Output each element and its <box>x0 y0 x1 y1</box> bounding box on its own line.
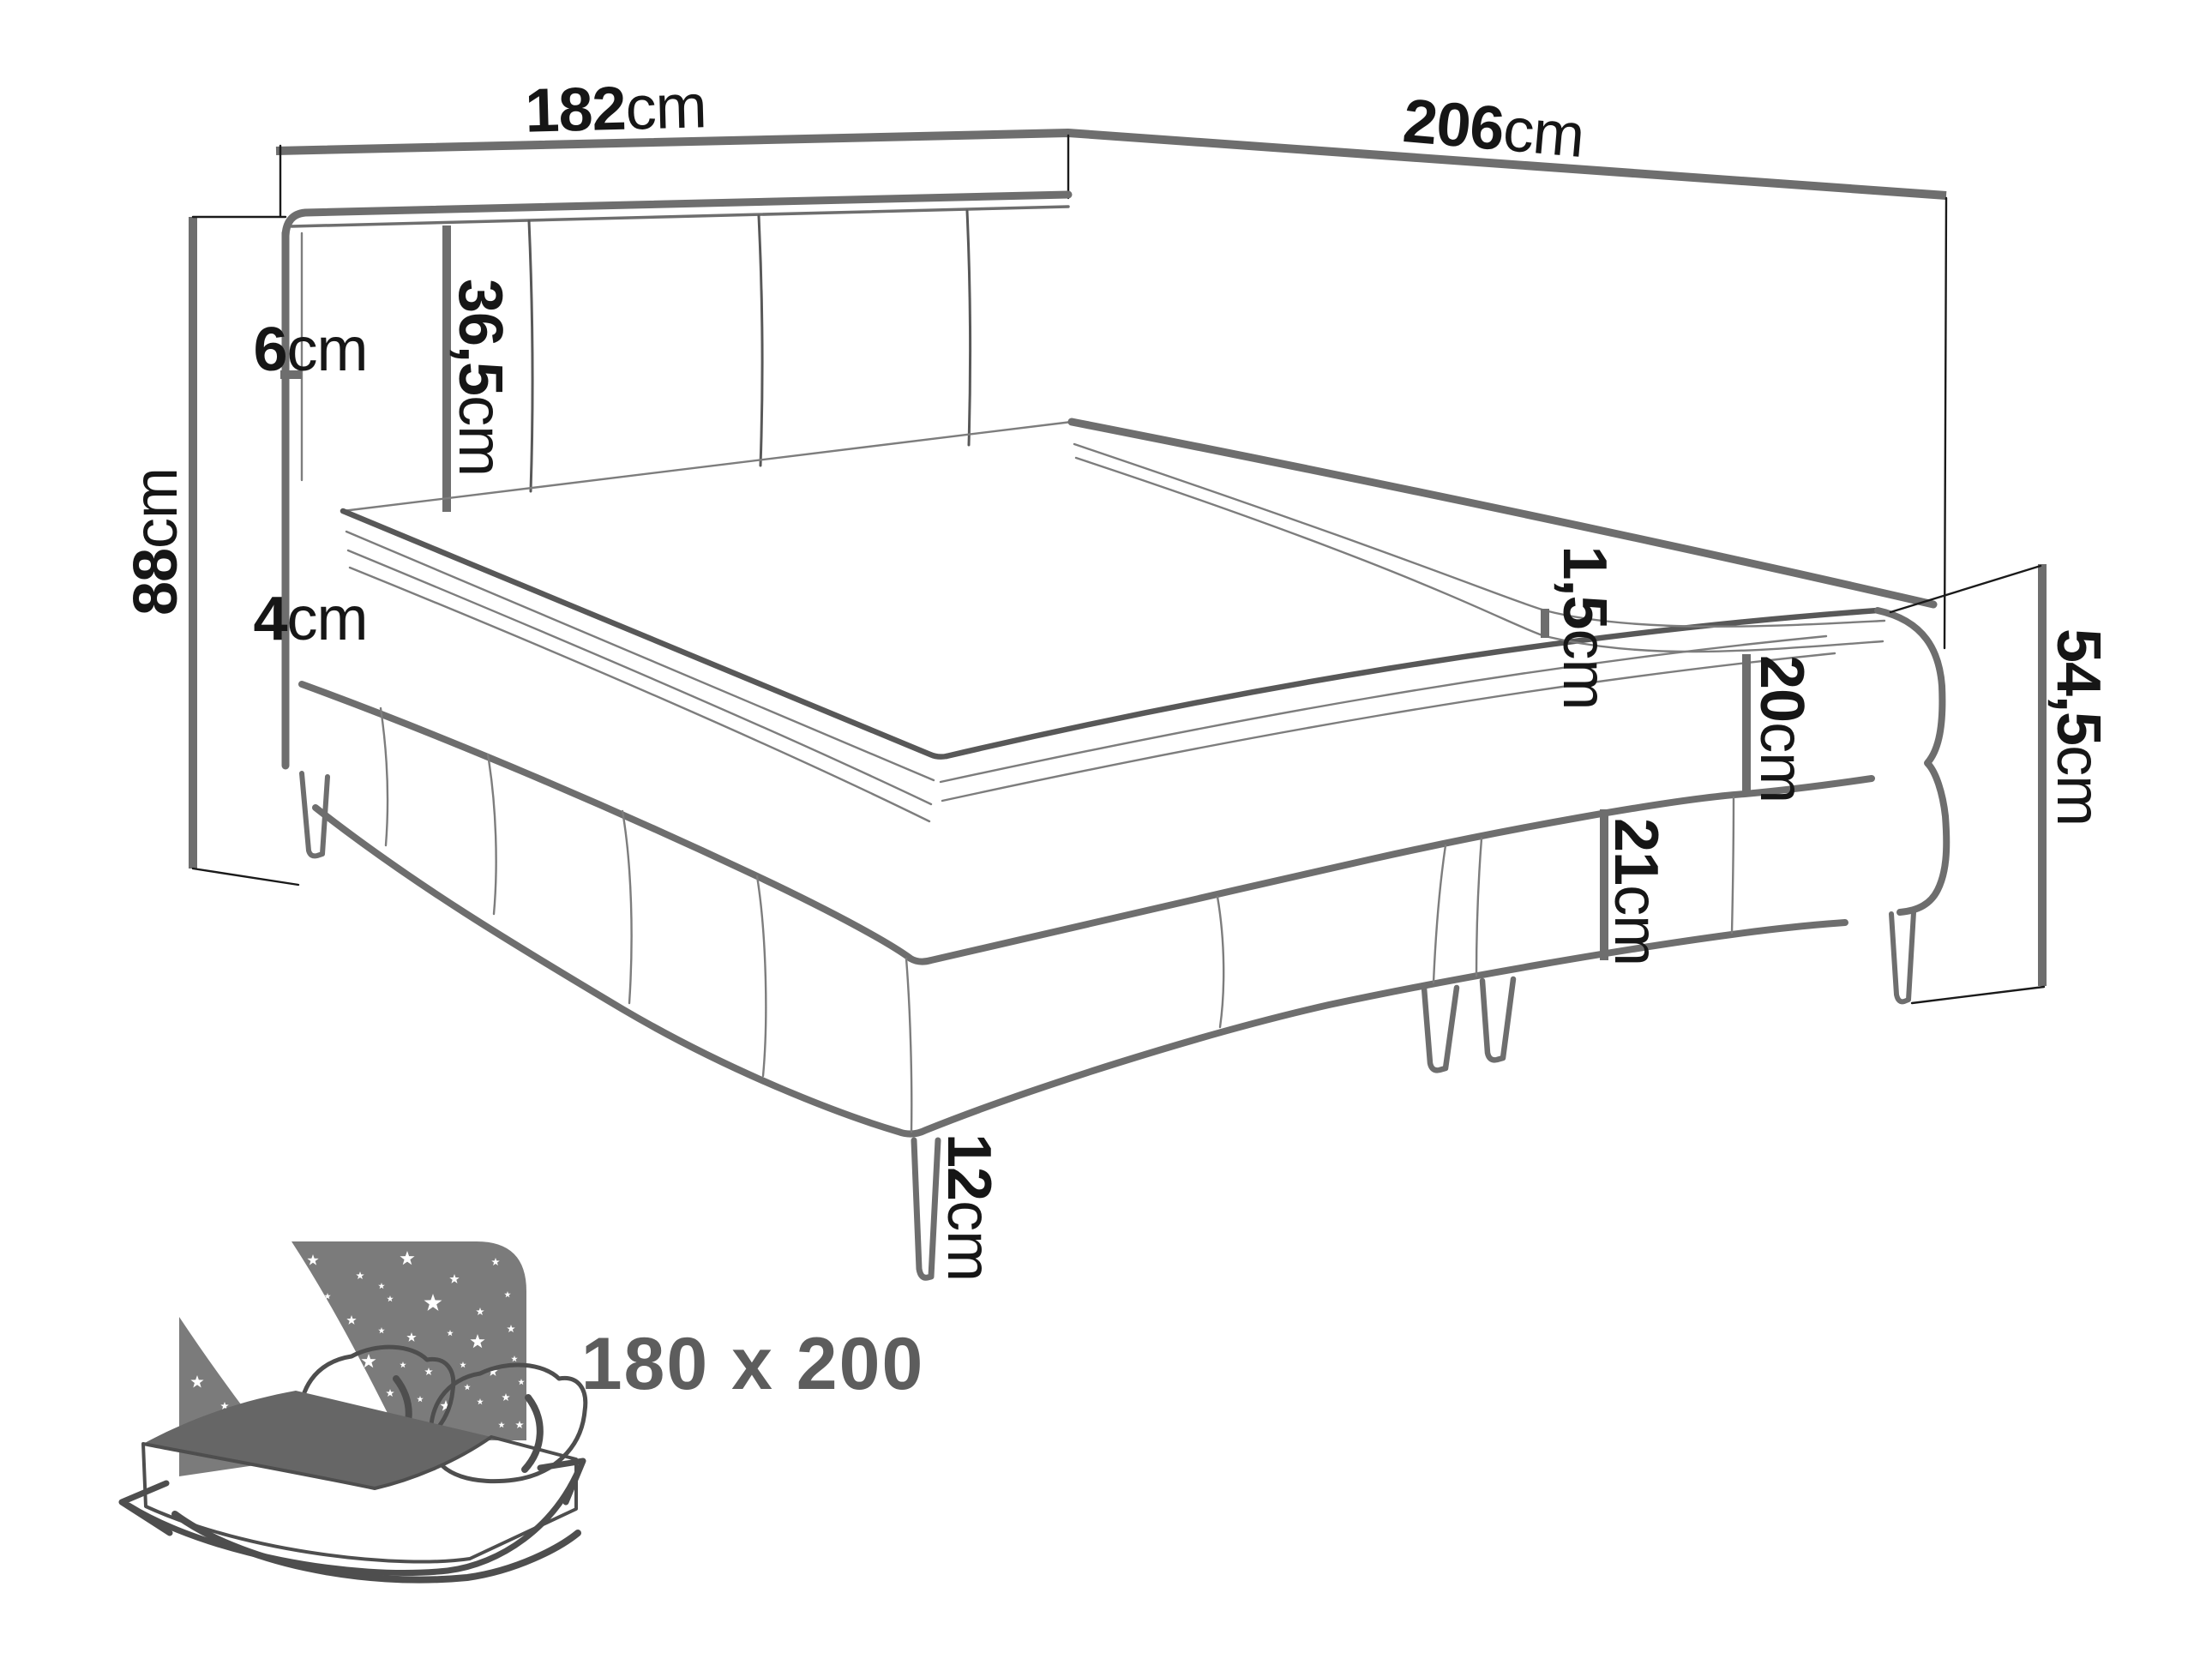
headboard-divider-2 <box>759 216 762 466</box>
svg-text:21cm: 21cm <box>1602 818 1670 965</box>
leg-headboard <box>302 773 328 856</box>
bed-size-icon <box>122 1241 586 1580</box>
dim-4-unit: cm <box>287 585 368 653</box>
dim-36-5-unit: cm <box>446 395 514 476</box>
dim-1-5-unit: cm <box>1550 629 1619 710</box>
topper-seam-left-2 <box>348 550 931 804</box>
box-seam-2 <box>488 754 496 914</box>
dim-182-value: 182 <box>524 75 626 146</box>
dimension-edge-6: 6cm <box>253 316 367 384</box>
legs <box>302 773 1914 1277</box>
dim-88-value: 88 <box>122 549 190 616</box>
dim-6-unit: cm <box>287 316 368 384</box>
topper-seam-front-1 <box>941 636 1826 782</box>
dimension-width-182: 182cm <box>524 72 706 145</box>
mattress-front-right-edge <box>947 610 1878 756</box>
dim-12-value: 12 <box>935 1133 1003 1200</box>
headboard-divider-1 <box>529 221 532 491</box>
tick-206-right <box>1945 198 1946 648</box>
svg-text:88cm: 88cm <box>122 468 190 616</box>
box-split-seam-2 <box>1476 839 1482 976</box>
box-base <box>302 610 1946 1134</box>
leg-middle-2 <box>1482 979 1513 1060</box>
svg-text:4cm: 4cm <box>253 585 367 653</box>
dim-21-value: 21 <box>1602 818 1670 885</box>
dim-54-5-unit: cm <box>2044 745 2113 826</box>
box-split-seam-1 <box>1434 845 1446 983</box>
box-seam-4 <box>757 876 766 1076</box>
topper-seam-left-3 <box>350 568 929 821</box>
right-corner-profile <box>1878 610 1946 912</box>
dim-54-5-value: 54,5 <box>2044 628 2113 745</box>
dim-12-unit: cm <box>935 1200 1003 1281</box>
mattress-right-top-edge <box>1072 422 1933 604</box>
svg-text:36,5cm: 36,5cm <box>446 279 514 476</box>
svg-text:6cm: 6cm <box>253 316 367 384</box>
dim-182-unit: cm <box>625 72 707 142</box>
box-seam-5 <box>1217 897 1223 1027</box>
size-badge: 180 x 200 <box>581 1323 925 1405</box>
leg-right <box>1891 912 1914 1001</box>
svg-text:182cm: 182cm <box>524 72 706 145</box>
dimension-topper-4: 4cm <box>253 585 367 653</box>
dimension-panel-36-5: 36,5cm <box>446 225 514 512</box>
dimension-side-54-5: 54,5cm <box>1890 564 2113 1003</box>
dim-4-value: 4 <box>253 585 287 653</box>
dimension-base-21: 21cm <box>1602 809 1670 965</box>
bed-dimension-diagram: 182cm 206cm 88cm 36,5cm 6cm <box>0 0 2212 1659</box>
headboard <box>286 195 1068 766</box>
box-seam-1 <box>381 708 388 845</box>
dim-21-unit: cm <box>1602 885 1670 965</box>
dim-20-unit: cm <box>1747 722 1816 802</box>
tick-54-5-bottom <box>1912 987 2044 1003</box>
tick-54-5-top <box>1890 566 2041 612</box>
mattress <box>343 422 1933 821</box>
headboard-divider-3 <box>967 211 971 445</box>
dimension-gap-1-5: 1,5cm <box>1545 545 1619 709</box>
leg-middle-1 <box>1424 988 1457 1070</box>
leg-front <box>914 1140 938 1277</box>
dimension-mattress-20: 20cm <box>1746 654 1816 802</box>
box-corner-seam <box>906 959 911 1132</box>
dim-206-unit: cm <box>1500 95 1587 171</box>
tick-88-bottom <box>193 869 298 885</box>
mattress-front-left-edge <box>343 511 947 757</box>
svg-text:1,5cm: 1,5cm <box>1550 545 1619 709</box>
dim-20-value: 20 <box>1747 655 1816 722</box>
topper-seam-left-1 <box>346 532 934 780</box>
svg-text:20cm: 20cm <box>1747 655 1816 802</box>
svg-text:54,5cm: 54,5cm <box>2044 628 2113 826</box>
dim-36-5-value: 36,5 <box>446 279 514 395</box>
topper-seam-right-1 <box>1074 444 1884 627</box>
box-seam-3 <box>622 811 632 1003</box>
dim-206-value: 206 <box>1400 87 1506 164</box>
size-badge-label: 180 x 200 <box>581 1323 925 1405</box>
dim-6-value: 6 <box>253 316 286 384</box>
dimension-leg-12: 12cm <box>935 1133 1003 1281</box>
icon-pillow-right-fold <box>525 1398 540 1470</box>
dim-1-5-value: 1,5 <box>1550 545 1619 628</box>
box-kink-seam <box>1732 797 1734 933</box>
dim-88-unit: cm <box>122 468 190 549</box>
svg-text:12cm: 12cm <box>935 1133 1003 1281</box>
